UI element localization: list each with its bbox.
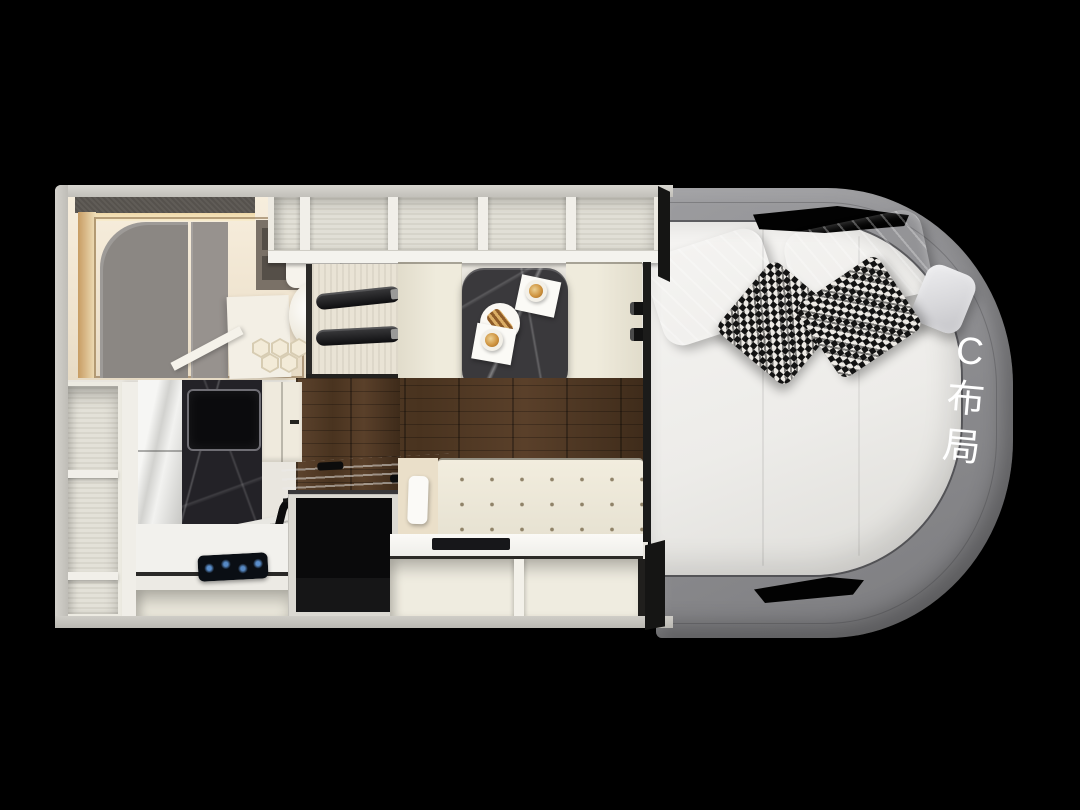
layout-label-char: 布: [936, 373, 996, 426]
cabinet-end-panel-top: [658, 186, 670, 282]
door-seam: [281, 382, 283, 462]
sofa-seat-counter: [390, 534, 643, 559]
outer-wall-top: [55, 185, 673, 197]
tv-cabinet-interior: [296, 578, 392, 612]
wet-bath-end-wall: [398, 458, 438, 534]
door-seam: [138, 450, 182, 452]
shelf-divider: [478, 192, 488, 250]
latte-art: [529, 284, 543, 298]
bathroom-top-wall: [75, 196, 255, 213]
panel-handle: [317, 461, 343, 470]
wardrobe-side-panel: [306, 264, 312, 382]
kitchen-upper-cabinet: [262, 382, 302, 462]
towel: [407, 476, 429, 525]
shower-partition: [100, 222, 188, 378]
coffee-cup: [481, 329, 503, 351]
layout-label-char: 局: [932, 421, 992, 474]
overhead-shelves-interior: [274, 192, 654, 250]
shelf-divider: [388, 192, 398, 250]
shower-floor-hex-tiles: [252, 338, 306, 378]
cabinet-handle: [290, 420, 299, 424]
partition-wall-bed: [643, 262, 651, 542]
dinette-bench-right: [566, 262, 642, 386]
shelf-board: [66, 470, 118, 478]
sofa-backrest: [438, 458, 643, 536]
storage-divider: [514, 559, 524, 618]
coffee-cup: [525, 280, 547, 302]
microwave-oven: [187, 389, 261, 451]
seat-tray: [432, 538, 510, 550]
dinette-bench-left: [398, 262, 462, 386]
tv-lift-cabinet: [288, 490, 400, 624]
floorplan-stage: C 布 局: [0, 0, 1080, 810]
outer-wall-left: [55, 185, 68, 628]
wardrobe: [306, 264, 398, 382]
kitchen-base-compartment: [136, 590, 290, 618]
under-seat-storage: [390, 559, 646, 618]
induction-cooktop: [197, 552, 268, 582]
latte-art: [485, 333, 499, 347]
cabinet-end-panel-bottom: [645, 540, 665, 630]
shelf-divider: [300, 192, 310, 250]
tv-back-panel: [296, 498, 392, 578]
storage-end-panel: [638, 559, 646, 618]
shelf-board: [66, 572, 118, 580]
kitchen-gloss-doors: [138, 380, 182, 524]
outer-wall-bottom: [55, 616, 673, 628]
layout-label-char: C: [940, 326, 1000, 379]
shelf-divider: [566, 192, 576, 250]
